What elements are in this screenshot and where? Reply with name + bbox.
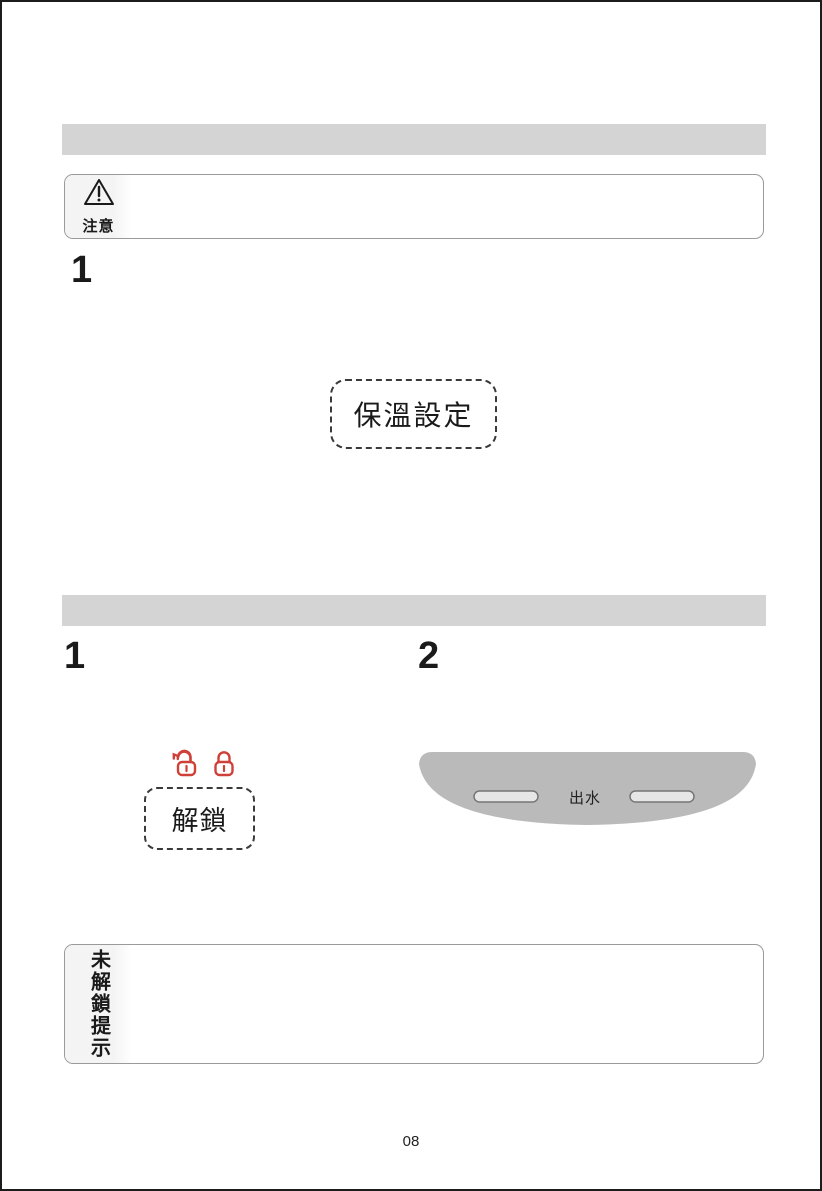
caution-side-strip: 注意 [65, 175, 132, 238]
lock-state-icons [167, 748, 237, 783]
step-number-unlock: 1 [64, 637, 84, 675]
keep-warm-setting-button: 保溫設定 [330, 379, 497, 449]
dispense-button-left [474, 791, 538, 802]
caution-note-box: 注意 [64, 174, 764, 239]
locked-padlock-icon [211, 748, 237, 783]
warning-triangle-icon [82, 177, 116, 212]
section-header-bar-dispense [62, 595, 766, 626]
manual-page: 注意 1 保溫設定 1 2 解鎖 [0, 0, 822, 1191]
page-number: 08 [2, 1133, 820, 1150]
note-side-strip: 未解鎖提示 [65, 945, 132, 1063]
unlock-button-label: 解鎖 [172, 799, 228, 838]
keep-warm-setting-label: 保溫設定 [353, 394, 473, 434]
dispense-panel-label: 出水 [558, 787, 612, 808]
unlocked-padlock-icon [167, 748, 197, 783]
unlock-button: 解鎖 [144, 787, 255, 850]
caution-label: 注意 [82, 215, 114, 236]
step-number-keep-warm: 1 [71, 251, 91, 289]
section-header-bar-keep-warm [62, 124, 766, 155]
dispense-button-right [630, 791, 694, 802]
not-unlocked-hint-box: 未解鎖提示 [64, 944, 764, 1064]
note-side-label: 未解鎖提示 [89, 949, 109, 1059]
step-number-dispense: 2 [418, 637, 438, 675]
